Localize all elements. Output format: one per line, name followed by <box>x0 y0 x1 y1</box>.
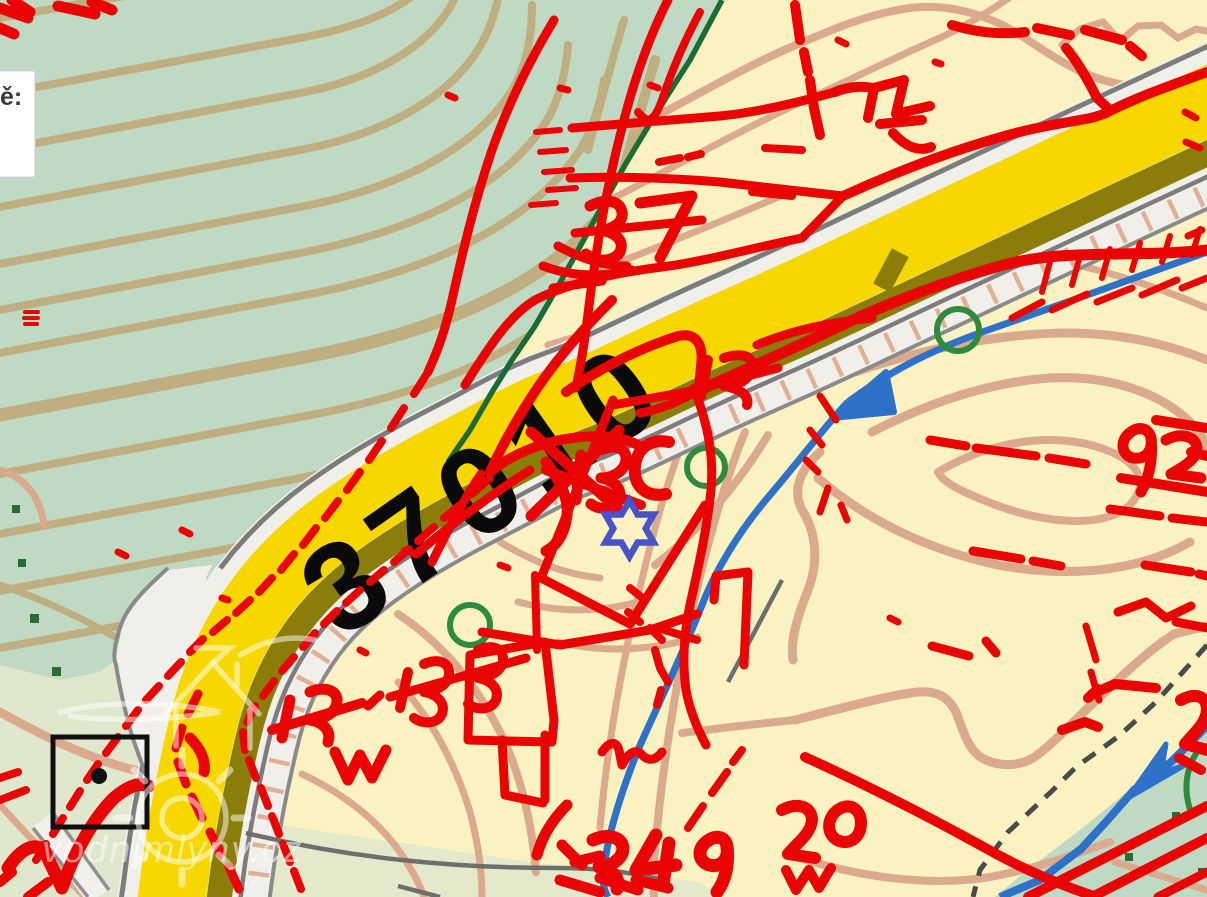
svg-text:ě:: ě: <box>0 83 22 111</box>
svg-text:vodnimlyny.cz: vodnimlyny.cz <box>42 829 304 871</box>
